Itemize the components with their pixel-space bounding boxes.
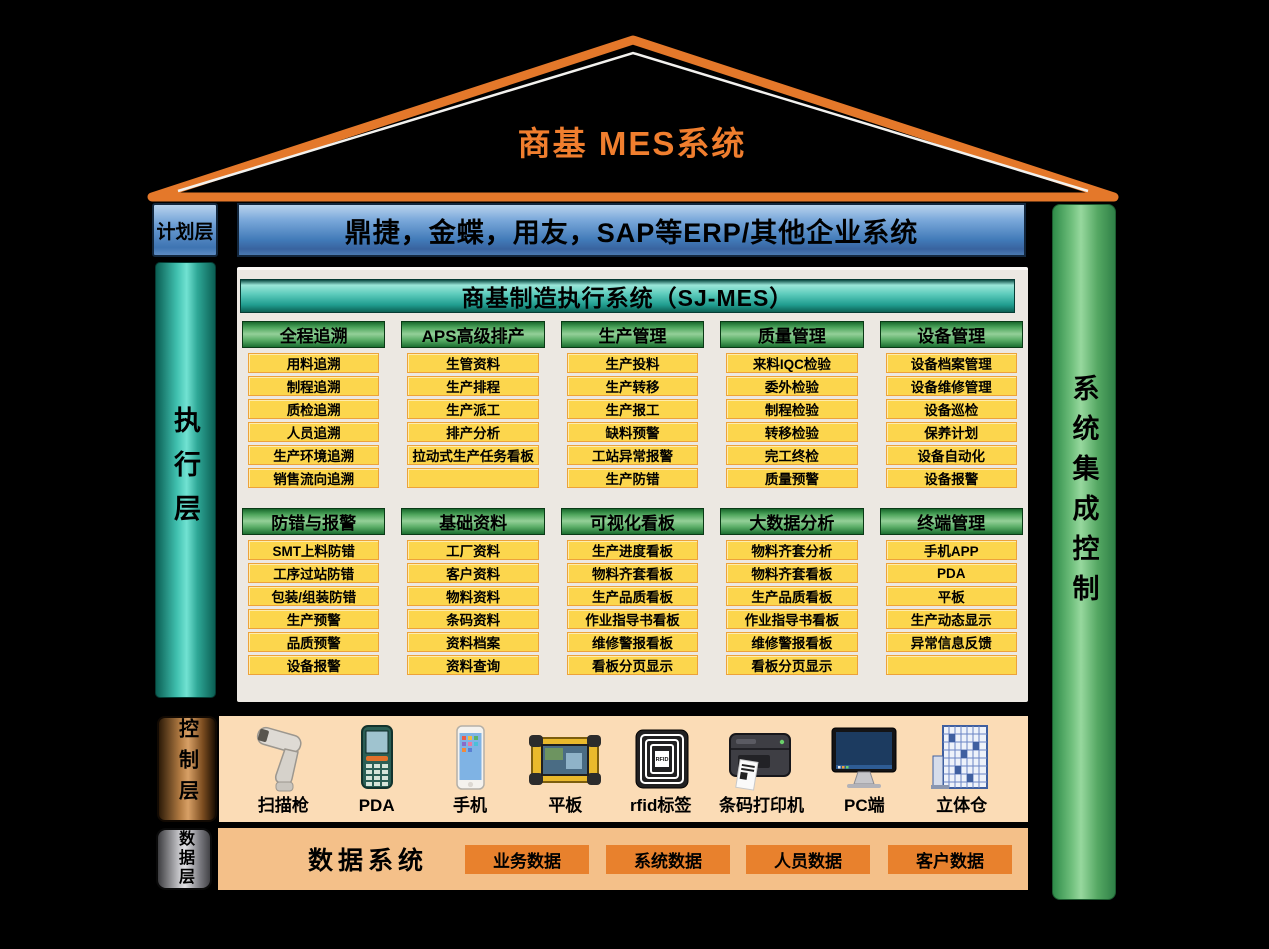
module-item: 生产环境追溯	[248, 445, 379, 465]
module-item: 作业指导书看板	[567, 609, 698, 629]
module-title: 可视化看板	[561, 508, 704, 535]
control-layer-label-text: 控制层	[173, 718, 202, 811]
module-item: 设备报警	[886, 468, 1017, 488]
device-pc: PC端	[827, 722, 901, 816]
module-title: 大数据分析	[720, 508, 863, 535]
module-item: 设备维修管理	[886, 376, 1017, 396]
module-item: 设备巡检	[886, 399, 1017, 419]
device-label: PDA	[359, 796, 395, 816]
data-layer-label: 数据层	[156, 828, 212, 890]
module-block: 大数据分析 物料齐套分析 物料齐套看板 生产品质看板 作业指导书看板 维修警报看…	[720, 508, 863, 675]
device-label: PC端	[844, 796, 885, 816]
module-items: 用料追溯 制程追溯 质检追溯 人员追溯 生产环境追溯 销售流向追溯	[242, 353, 385, 488]
module-item: 设备档案管理	[886, 353, 1017, 373]
system-integration-label: 系统集成控制	[1065, 374, 1104, 614]
device-label: 平板	[548, 796, 582, 816]
module-block: 生产管理 生产投料 生产转移 生产报工 缺料预警 工站异常报警 生产防错	[561, 321, 704, 488]
module-title: 基础资料	[401, 508, 544, 535]
data-layer-label-text: 数据层	[172, 830, 196, 887]
sjmes-header: 商基制造执行系统（SJ-MES）	[240, 279, 1015, 313]
module-item: 生产预警	[248, 609, 379, 629]
module-item: 质量预警	[726, 468, 857, 488]
device-label: 条码打印机	[719, 796, 804, 816]
control-layer-label: 控制层	[157, 716, 217, 822]
module-item: 生产防错	[567, 468, 698, 488]
module-items: 生管资料 生产排程 生产派工 排产分析 拉动式生产任务看板	[401, 353, 544, 488]
module-items: 物料齐套分析 物料齐套看板 生产品质看板 作业指导书看板 维修警报看板 看板分页…	[720, 540, 863, 675]
device-label: 立体仓	[936, 796, 987, 816]
module-item: 客户资料	[407, 563, 538, 583]
module-item: 维修警报看板	[567, 632, 698, 652]
execution-layer-label: 执行层	[155, 262, 216, 698]
module-item: 质检追溯	[248, 399, 379, 419]
execution-layer-label-text: 执行层	[166, 406, 205, 538]
module-item: 生产报工	[567, 399, 698, 419]
barcode-printer-icon	[724, 722, 798, 796]
module-item: 异常信息反馈	[886, 632, 1017, 652]
module-item: 制程检验	[726, 399, 857, 419]
device-barcode-printer: 条码打印机	[719, 722, 804, 816]
module-title: 生产管理	[561, 321, 704, 348]
pda-icon	[342, 722, 412, 796]
module-item: 工站异常报警	[567, 445, 698, 465]
module-item: 手机APP	[886, 540, 1017, 560]
module-item: 销售流向追溯	[248, 468, 379, 488]
device-rfid: RFID rfid标签	[626, 722, 696, 816]
erp-systems-text: 鼎捷，金蝶，用友，SAP等ERP/其他企业系统	[345, 211, 919, 250]
module-item	[407, 468, 538, 488]
data-system-band: 数据系统 业务数据 系统数据 人员数据 客户数据	[218, 828, 1028, 890]
module-item: 物料齐套看板	[567, 563, 698, 583]
device-label: 扫描枪	[258, 796, 309, 816]
module-block: 质量管理 来料IQC检验 委外检验 制程检验 转移检验 完工终检 质量预警	[720, 321, 863, 488]
module-title: 终端管理	[880, 508, 1023, 535]
svg-text:RFID: RFID	[655, 757, 668, 763]
module-item: 委外检验	[726, 376, 857, 396]
module-item: 转移检验	[726, 422, 857, 442]
device-label: 手机	[453, 796, 487, 816]
module-item: 拉动式生产任务看板	[407, 445, 538, 465]
modules-grid: 全程追溯 用料追溯 制程追溯 质检追溯 人员追溯 生产环境追溯 销售流向追溯 A…	[240, 321, 1025, 675]
module-block: 基础资料 工厂资料 客户资料 物料资料 条码资料 资料档案 资料查询	[401, 508, 544, 675]
system-integration-bar: 系统集成控制	[1052, 204, 1116, 900]
module-title: 质量管理	[720, 321, 863, 348]
module-item: SMT上料防错	[248, 540, 379, 560]
module-block: 终端管理 手机APP PDA 平板 生产动态显示 异常信息反馈	[880, 508, 1023, 675]
module-item: 保养计划	[886, 422, 1017, 442]
module-items: 设备档案管理 设备维修管理 设备巡检 保养计划 设备自动化 设备报警	[880, 353, 1023, 488]
database-box: 客户数据	[888, 845, 1012, 874]
module-items: 工厂资料 客户资料 物料资料 条码资料 资料档案 资料查询	[401, 540, 544, 675]
device-label: rfid标签	[630, 796, 691, 816]
module-block: 设备管理 设备档案管理 设备维修管理 设备巡检 保养计划 设备自动化 设备报警	[880, 321, 1023, 488]
module-item: 物料资料	[407, 586, 538, 606]
module-item: 条码资料	[407, 609, 538, 629]
module-item: 包装/组装防错	[248, 586, 379, 606]
module-item: 排产分析	[407, 422, 538, 442]
module-item: 制程追溯	[248, 376, 379, 396]
module-item	[886, 655, 1017, 675]
erp-systems-bar: 鼎捷，金蝶，用友，SAP等ERP/其他企业系统	[237, 203, 1026, 257]
module-item: 生产转移	[567, 376, 698, 396]
module-items: 来料IQC检验 委外检验 制程检验 转移检验 完工终检 质量预警	[720, 353, 863, 488]
module-item: 生产投料	[567, 353, 698, 373]
module-block: 可视化看板 生产进度看板 物料齐套看板 生产品质看板 作业指导书看板 维修警报看…	[561, 508, 704, 675]
module-block: APS高级排产 生管资料 生产排程 生产派工 排产分析 拉动式生产任务看板	[401, 321, 544, 488]
module-block: 全程追溯 用料追溯 制程追溯 质检追溯 人员追溯 生产环境追溯 销售流向追溯	[242, 321, 385, 488]
module-item: 生产进度看板	[567, 540, 698, 560]
tablet-icon	[528, 722, 602, 796]
barcode-scanner-icon	[248, 722, 318, 796]
device-phone: 手机	[435, 722, 505, 816]
control-devices-band: 扫描枪 PDA	[219, 716, 1028, 822]
diagram-title: 商基 MES系统	[382, 117, 882, 165]
device-pda: PDA	[342, 722, 412, 816]
database-box: 业务数据	[465, 845, 589, 874]
plan-layer-label-text: 计划层	[156, 217, 213, 244]
module-title: 设备管理	[880, 321, 1023, 348]
module-item: 资料查询	[407, 655, 538, 675]
plan-layer-label: 计划层	[152, 203, 218, 257]
module-item: 物料齐套看板	[726, 563, 857, 583]
module-item: 生管资料	[407, 353, 538, 373]
mes-architecture-diagram: 商基 MES系统 计划层 执行层 控制层 数据层 鼎捷，金蝶，用友，SAP等ER…	[0, 0, 1269, 949]
module-item: 工序过站防错	[248, 563, 379, 583]
module-item: 生产品质看板	[567, 586, 698, 606]
module-item: 设备报警	[248, 655, 379, 675]
module-items: SMT上料防错 工序过站防错 包装/组装防错 生产预警 品质预警 设备报警	[242, 540, 385, 675]
module-title: APS高级排产	[401, 321, 544, 348]
module-items: 手机APP PDA 平板 生产动态显示 异常信息反馈	[880, 540, 1023, 675]
phone-icon	[435, 722, 505, 796]
module-item: 用料追溯	[248, 353, 379, 373]
device-warehouse: 立体仓	[925, 722, 999, 816]
module-item: 生产品质看板	[726, 586, 857, 606]
module-item: 维修警报看板	[726, 632, 857, 652]
module-item: 平板	[886, 586, 1017, 606]
database-box: 系统数据	[606, 845, 730, 874]
module-item: 看板分页显示	[726, 655, 857, 675]
pc-monitor-icon	[827, 722, 901, 796]
module-item: 生产动态显示	[886, 609, 1017, 629]
module-item: 人员追溯	[248, 422, 379, 442]
module-title: 全程追溯	[242, 321, 385, 348]
warehouse-icon	[925, 722, 999, 796]
module-block: 防错与报警 SMT上料防错 工序过站防错 包装/组装防错 生产预警 品质预警 设…	[242, 508, 385, 675]
module-items: 生产投料 生产转移 生产报工 缺料预警 工站异常报警 生产防错	[561, 353, 704, 488]
mes-panel: 商基制造执行系统（SJ-MES） 全程追溯 用料追溯 制程追溯 质检追溯 人员追…	[237, 267, 1028, 702]
module-item: 来料IQC检验	[726, 353, 857, 373]
module-item: PDA	[886, 563, 1017, 583]
module-item: 完工终检	[726, 445, 857, 465]
module-item: 缺料预警	[567, 422, 698, 442]
module-item: 作业指导书看板	[726, 609, 857, 629]
module-item: 设备自动化	[886, 445, 1017, 465]
database-box: 人员数据	[746, 845, 870, 874]
module-item: 看板分页显示	[567, 655, 698, 675]
rfid-tag-icon: RFID	[626, 722, 696, 796]
module-item: 生产排程	[407, 376, 538, 396]
device-scanner: 扫描枪	[248, 722, 318, 816]
device-tablet: 平板	[528, 722, 602, 816]
module-item: 资料档案	[407, 632, 538, 652]
data-system-title: 数据系统	[278, 828, 458, 890]
module-item: 生产派工	[407, 399, 538, 419]
module-item: 物料齐套分析	[726, 540, 857, 560]
module-item: 工厂资料	[407, 540, 538, 560]
module-item: 品质预警	[248, 632, 379, 652]
sjmes-header-text: 商基制造执行系统（SJ-MES）	[462, 279, 794, 313]
module-title: 防错与报警	[242, 508, 385, 535]
module-items: 生产进度看板 物料齐套看板 生产品质看板 作业指导书看板 维修警报看板 看板分页…	[561, 540, 704, 675]
